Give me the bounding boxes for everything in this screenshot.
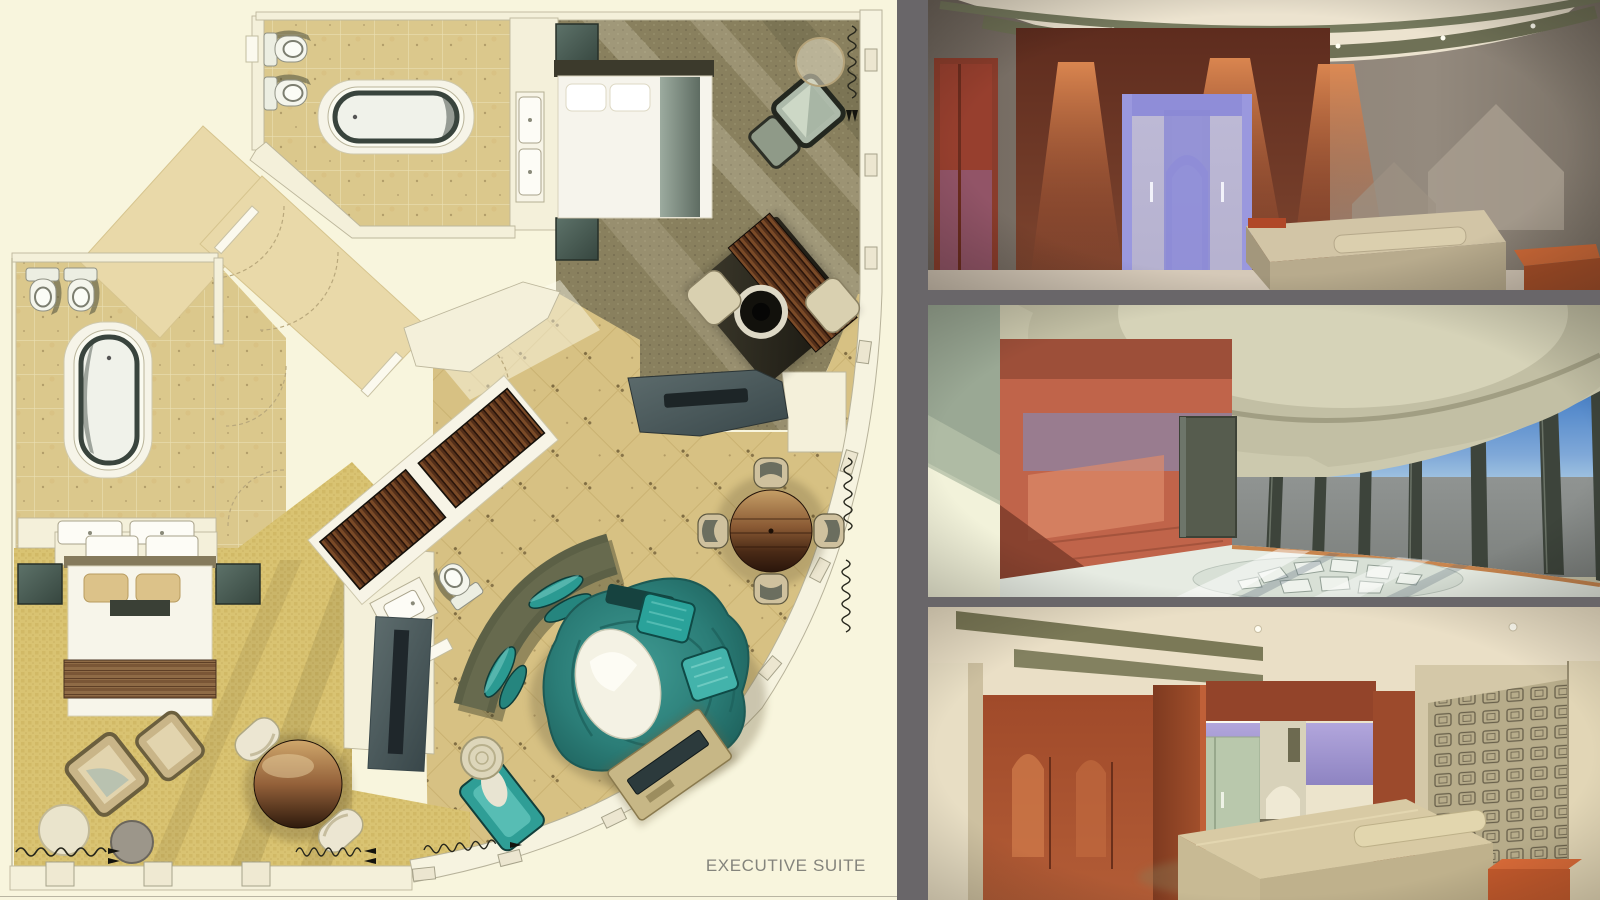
bathtub [318,80,474,154]
bed [64,556,216,716]
side-table [796,38,844,86]
nightstand [18,564,62,604]
plan-title: EXECUTIVE SUITE [706,856,866,876]
bedroom-corridor-render [928,607,1600,900]
media-wall [368,617,432,772]
nightstand [556,24,598,66]
nightstand [216,564,260,604]
bedroom-wardrobe-render [928,0,1600,290]
render-living-room [928,305,1600,597]
bed-runner [110,600,170,616]
round-table [254,740,342,828]
vignette [928,0,1600,290]
pillow [84,574,128,602]
woven-side-table [461,737,503,779]
bathtub [64,322,152,478]
render-bedroom-wardrobe [928,0,1600,290]
sheet-edge-line [0,896,897,897]
presentation-board: EXECUTIVE SUITE [0,0,1600,900]
bed [554,60,714,218]
vignette [928,305,1600,597]
floor-plan-drawing [0,0,897,900]
pillow [136,574,180,602]
render-strip [897,0,1600,900]
render-bedroom-corridor [928,607,1600,900]
bench [64,660,216,698]
floor-plan-panel: EXECUTIVE SUITE [0,0,897,900]
bed-runner [660,77,700,217]
ottoman [111,821,153,863]
bench-stool [556,218,598,260]
cistern [246,36,258,62]
curved-living-room-render [928,305,1600,597]
vignette [928,607,1600,900]
